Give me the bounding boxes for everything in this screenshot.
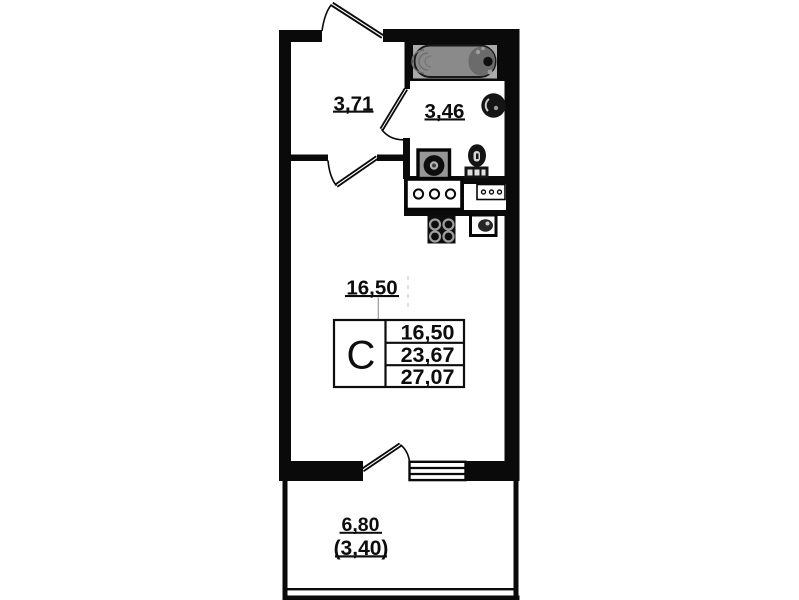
svg-text:23,67: 23,67	[401, 343, 455, 367]
svg-text:27,07: 27,07	[401, 365, 455, 389]
svg-text:16,50: 16,50	[401, 321, 455, 345]
svg-text:С: С	[347, 334, 376, 378]
